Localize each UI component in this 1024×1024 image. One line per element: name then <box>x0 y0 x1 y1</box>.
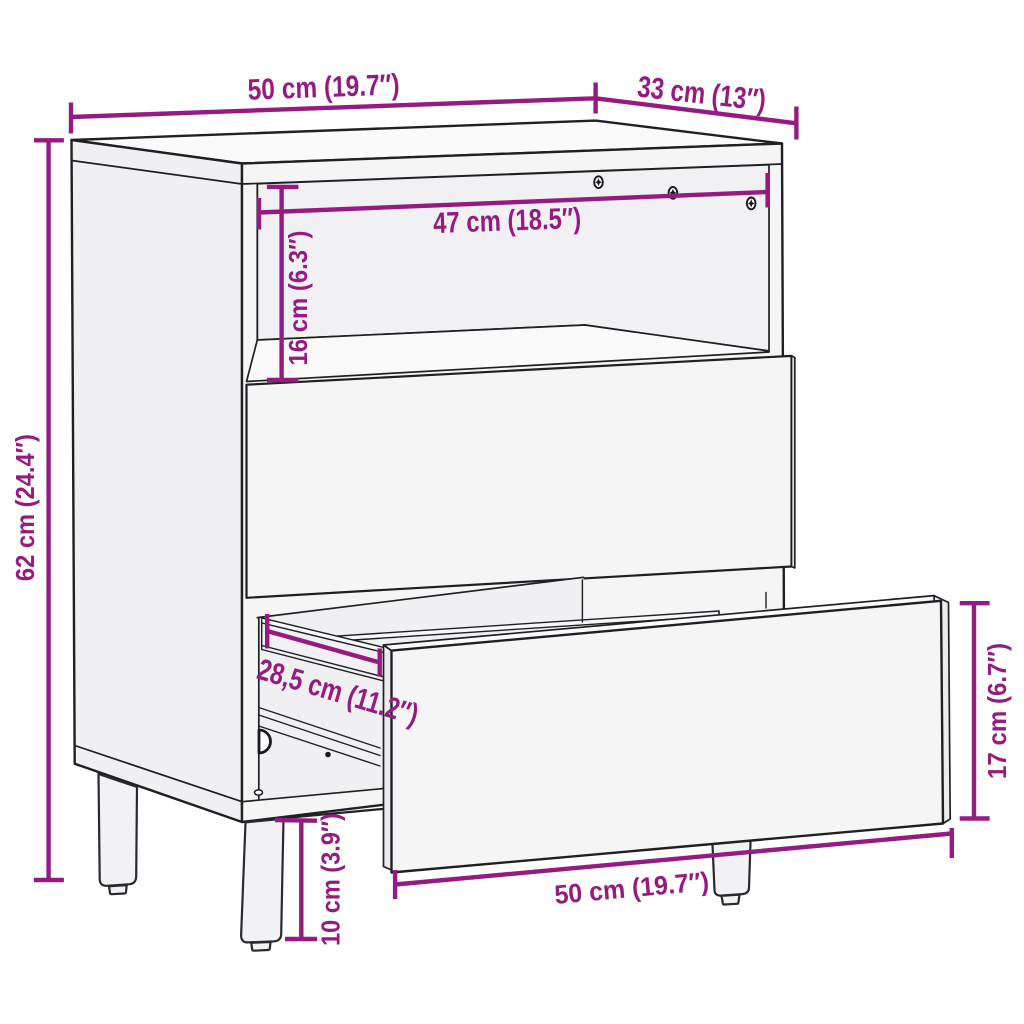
svg-text:10 cm (3.9″): 10 cm (3.9″) <box>316 813 346 946</box>
svg-text:50 cm (19.7″): 50 cm (19.7″) <box>247 68 400 107</box>
svg-text:17 cm (6.7″): 17 cm (6.7″) <box>982 643 1012 779</box>
svg-text:47 cm (18.5″): 47 cm (18.5″) <box>433 202 582 240</box>
svg-text:62 cm (24.4″): 62 cm (24.4″) <box>10 434 40 581</box>
svg-text:16 cm (6.3″): 16 cm (6.3″) <box>283 231 313 366</box>
